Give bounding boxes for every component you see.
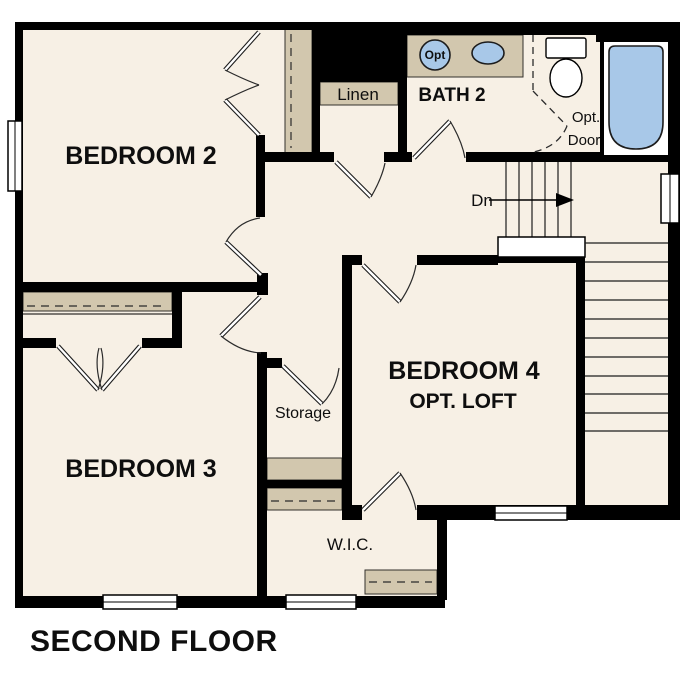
bedroom3-closet-shelf	[23, 292, 172, 311]
sink	[472, 42, 504, 64]
page-title: SECOND FLOOR	[30, 625, 278, 658]
stair-landing	[498, 237, 585, 257]
bedroom2-closet-shelf	[285, 29, 312, 153]
label-opt-door-2: Door	[568, 132, 601, 149]
chase-void	[312, 22, 402, 82]
label-opt-door-1: Opt.	[572, 109, 600, 126]
room-label-bedroom2: BEDROOM 2	[65, 142, 216, 170]
label-linen: Linen	[337, 85, 379, 104]
toilet-bowl	[550, 59, 582, 97]
room-label-bath2: BATH 2	[418, 85, 485, 106]
storage-shelf	[267, 458, 342, 480]
room-label-bedroom3: BEDROOM 3	[65, 455, 216, 483]
room-label-bedroom4: BEDROOM 4	[388, 357, 540, 385]
bathtub	[609, 46, 663, 149]
label-wic: W.I.C.	[327, 535, 373, 554]
room-label-opt-loft: OPT. LOFT	[409, 390, 517, 413]
floor-plan: BEDROOM 2 BEDROOM 3 BEDROOM 4 OPT. LOFT …	[0, 0, 687, 687]
wic-shelf-top	[267, 488, 342, 510]
toilet-tank	[546, 38, 586, 58]
label-storage: Storage	[275, 405, 331, 422]
label-stairs-down: Dn	[471, 191, 493, 210]
label-opt-sink: Opt	[425, 48, 446, 62]
